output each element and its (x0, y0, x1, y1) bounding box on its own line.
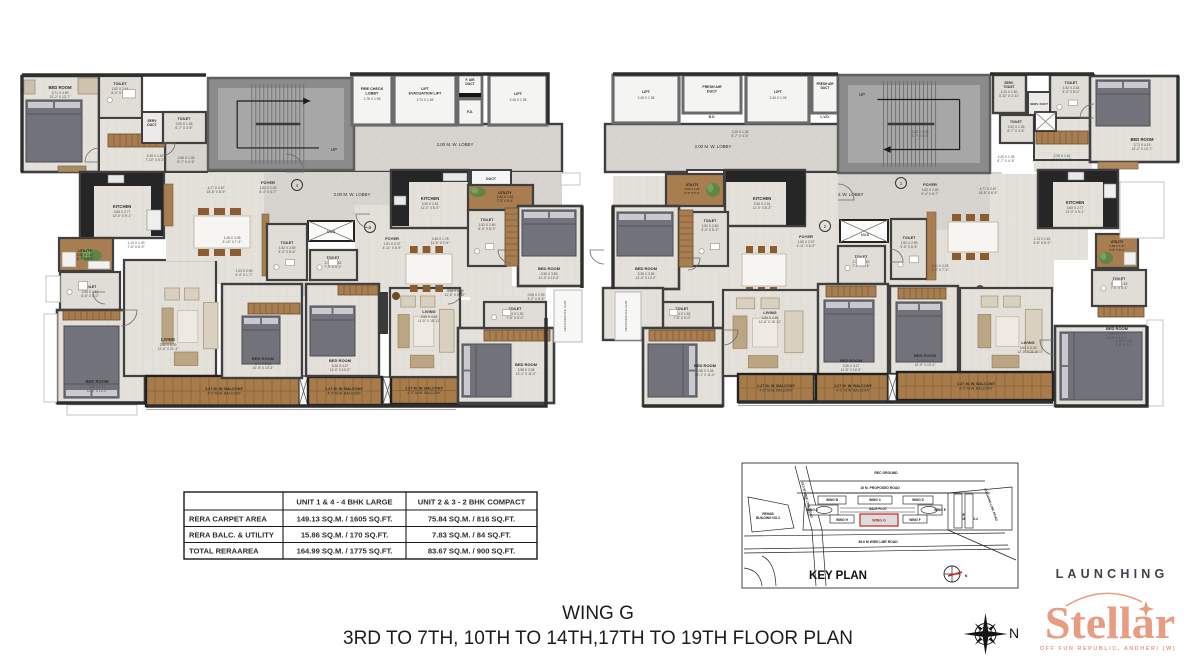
svg-text:13'-1" X 11'-0": 13'-1" X 11'-0" (695, 373, 716, 377)
svg-text:3'-4" X 7'-4": 3'-4" X 7'-4" (931, 268, 949, 272)
svg-text:KITCHEN: KITCHEN (421, 196, 440, 201)
svg-text:M&B: M&B (861, 233, 870, 237)
svg-text:WING G: WING G (562, 603, 634, 624)
svg-text:3'-8" X 5'-2": 3'-8" X 5'-2" (1115, 343, 1133, 347)
svg-text:3'-4" X 1'-7": 3'-4" X 1'-7" (235, 273, 253, 277)
svg-text:3'-2" X 6'-6": 3'-2" X 6'-6" (527, 297, 545, 301)
svg-text:BED ROOM: BED ROOM (329, 358, 352, 363)
svg-text:TOILET: TOILET (903, 236, 917, 240)
svg-text:7'-8" X 5'-0": 7'-8" X 5'-0" (673, 316, 691, 320)
svg-text:6'-6" X 5'-0": 6'-6" X 5'-0" (81, 294, 99, 298)
svg-text:SERV. DUCT: SERV. DUCT (1030, 102, 1048, 106)
svg-text:7'-3" X 5'-4": 7'-3" X 5'-4" (497, 199, 514, 203)
svg-text:FIRE CHECK: FIRE CHECK (361, 87, 384, 91)
svg-text:LIFT: LIFT (774, 90, 783, 94)
svg-text:LIVING: LIVING (1021, 340, 1034, 345)
svg-text:3RD TO 7TH, 10TH TO 14TH,17TH: 3RD TO 7TH, 10TH TO 14TH,17TH TO 19TH FL… (343, 628, 853, 649)
svg-text:F.D.: F.D. (467, 110, 473, 114)
svg-text:FOYER: FOYER (385, 236, 399, 241)
svg-text:WING C: WING C (869, 498, 882, 502)
svg-text:1.27 M. W. BALCONY: 1.27 M. W. BALCONY (957, 382, 995, 386)
svg-text:1.78 X 1.98: 1.78 X 1.98 (364, 97, 381, 101)
svg-text:LIFT: LIFT (642, 90, 651, 94)
svg-text:13'-1" X 11'-0": 13'-1" X 11'-0" (516, 372, 537, 376)
svg-text:WING G: WING G (872, 519, 886, 523)
svg-text:DUCT: DUCT (465, 82, 474, 86)
svg-text:L.V.D.: L.V.D. (820, 115, 829, 119)
svg-text:BED ROOM: BED ROOM (635, 266, 658, 271)
svg-text:TOILET: TOILET (1003, 85, 1014, 89)
svg-text:WING B: WING B (826, 498, 839, 502)
svg-text:TOILET: TOILET (113, 82, 127, 86)
svg-text:TOILET: TOILET (1010, 120, 1023, 124)
svg-text:2.00 M. W. LOBBY: 2.00 M. W. LOBBY (334, 192, 371, 197)
svg-text:5'-0" X 8'-0": 5'-0" X 8'-0" (1062, 90, 1080, 94)
svg-text:12'-6" X 21'-3": 12'-6" X 21'-3" (158, 347, 180, 351)
svg-text:6'-7" X 5'-2": 6'-7" X 5'-2" (77, 257, 94, 261)
svg-text:BED ROOM: BED ROOM (252, 356, 275, 361)
svg-text:RERA BALC. & UTILITY: RERA BALC. & UTILITY (189, 531, 274, 540)
svg-text:5'-6" X 8'-6": 5'-6" X 8'-6" (900, 245, 918, 249)
svg-text:7'-6" X 5'-9": 7'-6" X 5'-9" (127, 245, 145, 249)
svg-text:B.O.: B.O. (709, 115, 716, 119)
svg-text:15.86 SQ.M. / 170 SQ.FT.: 15.86 SQ.M. / 170 SQ.FT. (301, 531, 388, 540)
svg-text:TOILET: TOILET (178, 117, 192, 121)
svg-text:1.27 M. W. BALCONY: 1.27 M. W. BALCONY (405, 386, 443, 390)
svg-text:DUCT: DUCT (707, 89, 718, 93)
svg-text:OFF FUN REPUBLIC, ANDHERI (W): OFF FUN REPUBLIC, ANDHERI (W) (1040, 646, 1176, 652)
svg-text:8'-7" X 4'-5": 8'-7" X 4'-5" (177, 160, 195, 164)
svg-text:BUILDING NO.3: BUILDING NO.3 (756, 516, 780, 520)
svg-text:6'-7" X 4'-5": 6'-7" X 4'-5" (1007, 129, 1025, 133)
svg-text:TOTAL RERAAREA: TOTAL RERAAREA (189, 547, 259, 556)
svg-text:7'-10" X 5'-3": 7'-10" X 5'-3" (146, 158, 166, 162)
svg-text:12'-0" X 9'-1": 12'-0" X 9'-1" (113, 214, 133, 218)
svg-text:16 M. PROPOSED ROAD: 16 M. PROPOSED ROAD (860, 486, 900, 490)
svg-text:SALE PLOT: SALE PLOT (869, 507, 887, 511)
svg-text:6'-7" X 4'-5": 6'-7" X 4'-5" (175, 126, 193, 130)
svg-text:2.70 X 1.65: 2.70 X 1.65 (417, 98, 434, 102)
svg-text:11'-8" X 15'-11": 11'-8" X 15'-11" (759, 320, 782, 324)
svg-text:1.27 M. W. BALCONY: 1.27 M. W. BALCONY (757, 384, 795, 388)
svg-text:12'-6" X 21'-3": 12'-6" X 21'-3" (1018, 350, 1040, 354)
svg-text:4'-11" X 6'-9": 4'-11" X 6'-9" (383, 246, 403, 250)
svg-text:N: N (1009, 625, 1019, 641)
svg-text:WING D: WING D (912, 498, 925, 502)
svg-text:M&B: M&B (327, 230, 336, 234)
svg-text:7'-8" X 5'-0": 7'-8" X 5'-0" (506, 316, 524, 320)
svg-text:4'-2" M.W. BALCONY: 4'-2" M.W. BALCONY (759, 389, 793, 393)
svg-text:BED ROOM: BED ROOM (1106, 326, 1129, 331)
svg-text:KITCHEN: KITCHEN (113, 204, 132, 209)
svg-text:UNIT 2 & 3 - 2 BHK COMPACT: UNIT 2 & 3 - 2 BHK COMPACT (418, 498, 526, 507)
svg-text:15'-8" X 8'-9": 15'-8" X 8'-9" (979, 191, 999, 195)
svg-text:UP: UP (331, 147, 337, 152)
svg-text:11'-0" X 12'-0": 11'-0" X 12'-0" (539, 276, 560, 280)
svg-text:2.00 M. W. LOBBY: 2.00 M. W. LOBBY (437, 142, 474, 147)
svg-text:3'-10" X 7'-4": 3'-10" X 7'-4" (223, 240, 243, 244)
svg-text:DECK/SERVICE SLAB: DECK/SERVICE SLAB (624, 301, 628, 332)
svg-text:LIVING: LIVING (763, 310, 776, 315)
svg-text:4'-2" M.W. BALCONY: 4'-2" M.W. BALCONY (207, 392, 241, 396)
svg-text:5'-6" X 5'-2": 5'-6" X 5'-2" (1109, 248, 1125, 252)
svg-text:DUCT: DUCT (147, 123, 157, 127)
svg-text:5'-4" X 6'-7": 5'-4" X 6'-7" (921, 192, 939, 196)
svg-text:REC GROUND: REC GROUND (874, 471, 898, 475)
svg-text:WING E: WING E (934, 508, 946, 512)
svg-text:1.27 M. W. BALCONY: 1.27 M. W. BALCONY (325, 387, 363, 391)
svg-text:FOYER: FOYER (799, 234, 813, 239)
svg-text:BED ROOM: BED ROOM (1130, 137, 1154, 142)
svg-text:BED ROOM: BED ROOM (840, 358, 863, 363)
svg-text:BED ROOM: BED ROOM (538, 266, 561, 271)
svg-text:11'-0" X 8'-3": 11'-0" X 8'-3" (753, 206, 773, 210)
svg-text:LOBBY: LOBBY (366, 92, 379, 96)
svg-text:5'-0" X 8'-2": 5'-0" X 8'-2" (478, 227, 496, 231)
svg-text:LIVING: LIVING (161, 337, 175, 342)
svg-text:Stellar: Stellar (1045, 597, 1175, 648)
svg-text:KITCHEN: KITCHEN (753, 196, 772, 201)
svg-text:2.45 X 1.95: 2.45 X 1.95 (770, 96, 787, 100)
svg-text:12'-2" X 13'-7": 12'-2" X 13'-7" (50, 95, 72, 99)
svg-text:5'-4" X 6'-7": 5'-4" X 6'-7" (259, 190, 277, 194)
svg-text:11'-0" X 12'-0": 11'-0" X 12'-0" (636, 276, 657, 280)
svg-text:5'-0" X 8'-6": 5'-0" X 8'-6" (278, 250, 296, 254)
svg-text:4'-2" M.W. BALCONY: 4'-2" M.W. BALCONY (327, 392, 361, 396)
svg-text:TOILET: TOILET (704, 219, 718, 223)
svg-text:12'-2" X 13'-7": 12'-2" X 13'-7" (1132, 147, 1154, 151)
svg-text:11'-8" X 15'-11": 11'-8" X 15'-11" (418, 319, 441, 323)
svg-text:EVACUATION LIFT: EVACUATION LIFT (409, 92, 442, 96)
svg-text:BED ROOM: BED ROOM (48, 85, 72, 90)
svg-text:LIFT: LIFT (421, 87, 430, 91)
svg-text:6'-7" X 4'-5": 6'-7" X 4'-5" (997, 159, 1015, 163)
svg-text:4'-2" M.W. BALCONY: 4'-2" M.W. BALCONY (836, 389, 870, 393)
svg-text:9'-3" X 5'-4": 9'-3" X 5'-4" (684, 191, 700, 195)
svg-text:BED ROOM: BED ROOM (515, 362, 538, 367)
svg-text:BED ROOM: BED ROOM (914, 353, 937, 358)
svg-text:FRESH AIR: FRESH AIR (702, 85, 722, 89)
svg-text:11'-5" X 2'-9": 11'-5" X 2'-9" (431, 241, 451, 245)
svg-text:3'-11" X 4'-11": 3'-11" X 4'-11" (999, 94, 1020, 98)
svg-text:4'-11" X 6'-9": 4'-11" X 6'-9" (797, 244, 817, 248)
svg-text:11'-0" X 8'-3": 11'-0" X 8'-3" (421, 206, 441, 210)
svg-text:2.00 M. W. LOBBY: 2.00 M. W. LOBBY (695, 144, 732, 149)
svg-text:DECK/SERVICE SLAB: DECK/SERVICE SLAB (563, 301, 567, 332)
svg-text:TOILET: TOILET (481, 218, 495, 222)
svg-text:BED ROOM: BED ROOM (694, 363, 717, 368)
svg-text:FOYER: FOYER (261, 180, 275, 185)
svg-text:75.84 SQ.M. / 816 SQ.FT.: 75.84 SQ.M. / 816 SQ.FT. (428, 515, 515, 524)
svg-text:149.13 SQ.M. / 1605 SQ.FT.: 149.13 SQ.M. / 1605 SQ.FT. (297, 515, 393, 524)
svg-text:11'-0" X 14'-0": 11'-0" X 14'-0" (330, 368, 351, 372)
svg-text:KITCHEN: KITCHEN (1066, 200, 1085, 205)
svg-text:83.67 SQ.M. / 900 SQ.FT.: 83.67 SQ.M. / 900 SQ.FT. (428, 547, 515, 556)
svg-text:2.45 X 1.95: 2.45 X 1.95 (638, 96, 655, 100)
svg-text:4'-2" M.W. BALCONY: 4'-2" M.W. BALCONY (959, 387, 993, 391)
svg-text:RERA CARPET AREA: RERA CARPET AREA (189, 515, 267, 524)
svg-text:DUCT: DUCT (486, 177, 497, 181)
svg-text:N: N (965, 574, 968, 578)
svg-text:11'-9" X 14'-0": 11'-9" X 14'-0" (87, 389, 108, 393)
svg-text:WING H: WING H (836, 518, 849, 522)
svg-text:LAUNCHING: LAUNCHING (1056, 567, 1169, 581)
svg-text:10'-5" X 10'-3": 10'-5" X 10'-3" (253, 366, 275, 370)
svg-text:164.99 SQ.M. / 1775 SQ.FT.: 164.99 SQ.M. / 1775 SQ.FT. (297, 547, 393, 556)
svg-text:36.6 M WIDE LMR ROAD: 36.6 M WIDE LMR ROAD (858, 540, 898, 544)
svg-text:4'-2" M.W. BALCONY: 4'-2" M.W. BALCONY (407, 391, 441, 395)
svg-text:TOILET: TOILET (281, 241, 295, 245)
svg-text:15'-8" X 8'-9": 15'-8" X 8'-9" (207, 190, 227, 194)
svg-text:WING F: WING F (909, 518, 921, 522)
svg-text:KEY PLAN: KEY PLAN (809, 570, 867, 582)
svg-text:10'-5" X 10'-3": 10'-5" X 10'-3" (915, 363, 937, 367)
svg-text:11'-0" X 14'-0": 11'-0" X 14'-0" (841, 368, 862, 372)
svg-text:LIFT: LIFT (514, 92, 523, 96)
svg-text:7.83 SQ.M. / 84 SQ.FT.: 7.83 SQ.M. / 84 SQ.FT. (432, 531, 511, 540)
svg-text:11'-5" X 5'-10": 11'-5" X 5'-10" (445, 293, 466, 297)
svg-text:UP: UP (859, 92, 865, 97)
svg-text:TOILET: TOILET (1065, 81, 1079, 85)
svg-text:1.27 M. W. BALCONY: 1.27 M. W. BALCONY (205, 387, 243, 391)
svg-text:6'-7" X 4'-5": 6'-7" X 4'-5" (911, 134, 929, 138)
svg-text:1.27 M. W. BALCONY: 1.27 M. W. BALCONY (834, 384, 872, 388)
svg-text:5'-0" X 8'-2": 5'-0" X 8'-2" (701, 228, 719, 232)
svg-text:DUCT: DUCT (821, 86, 830, 90)
svg-text:3'-8" X 5'-2": 3'-8" X 5'-2" (1033, 241, 1051, 245)
svg-text:BED ROOM: BED ROOM (85, 379, 109, 384)
svg-text:6'-7" X 4'-5": 6'-7" X 4'-5" (731, 134, 749, 138)
svg-text:12'-0" X 9'-1": 12'-0" X 9'-1" (1066, 210, 1086, 214)
svg-text:FOYER: FOYER (923, 182, 937, 187)
svg-text:2.45 X 1.95: 2.45 X 1.95 (510, 98, 527, 102)
svg-text:7'-10" X 5'-3": 7'-10" X 5'-3" (1053, 158, 1073, 162)
svg-text:UNIT 1 & 4 - 4 BHK LARGE: UNIT 1 & 4 - 4 BHK LARGE (296, 498, 392, 507)
svg-text:LIVING: LIVING (422, 309, 435, 314)
